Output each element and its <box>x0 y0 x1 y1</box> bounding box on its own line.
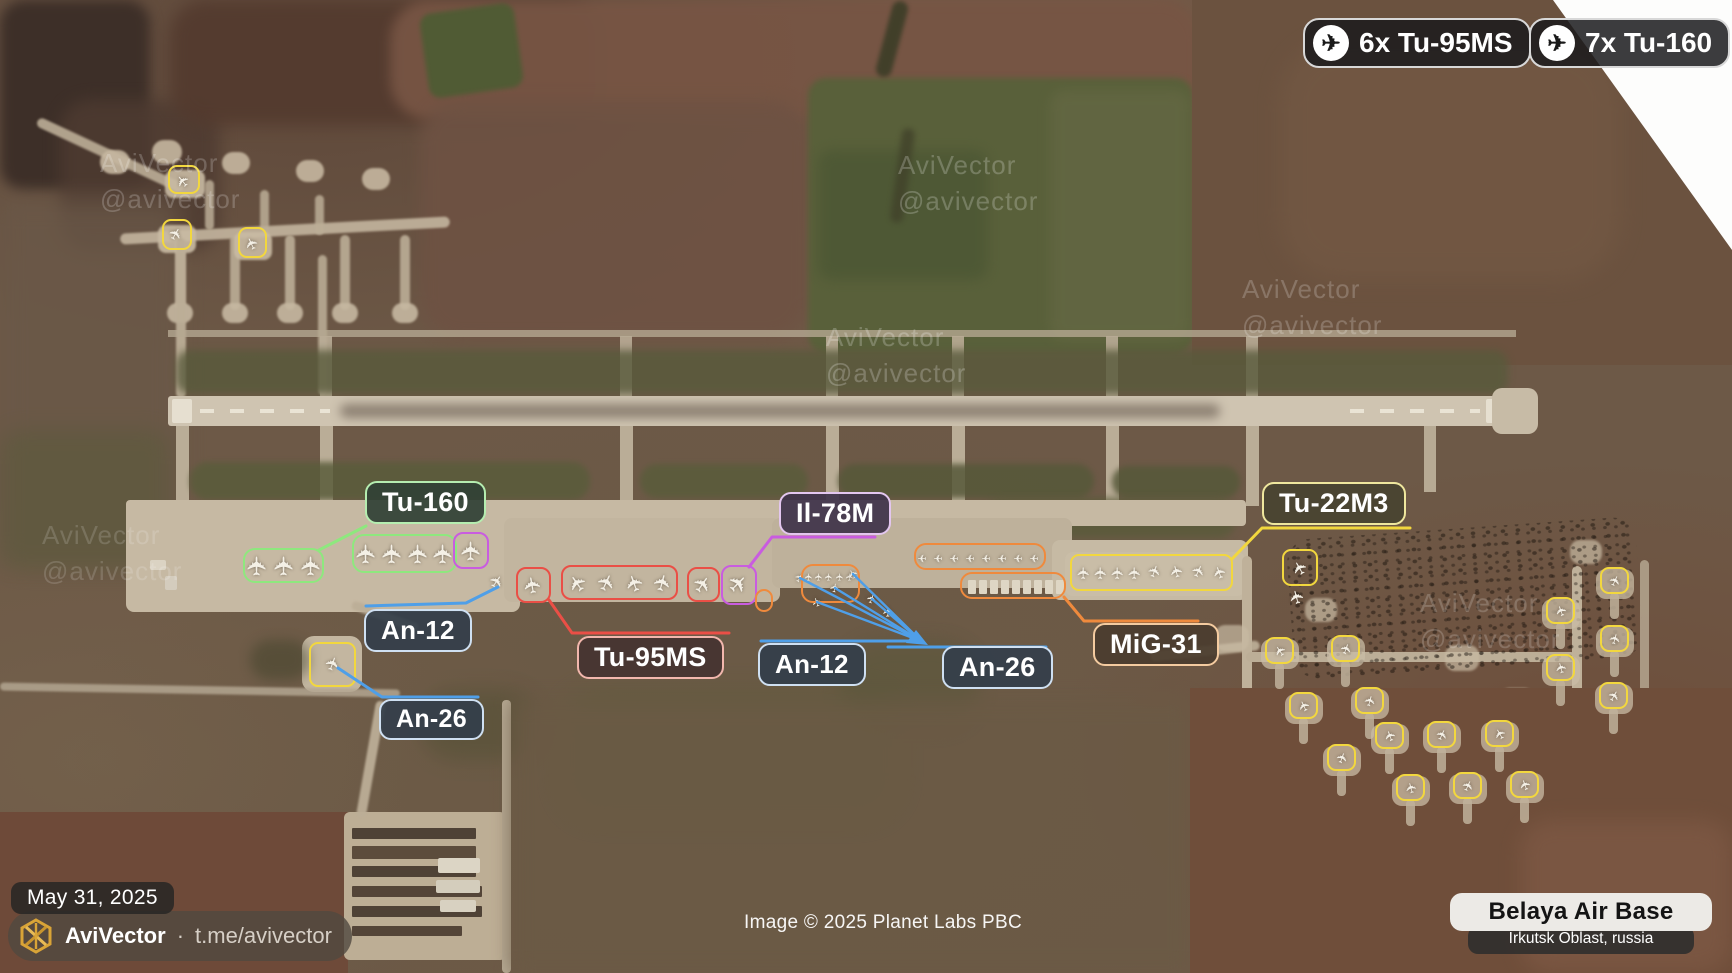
annotation-box-yellow <box>1453 772 1482 799</box>
label-an12-left: An-12 <box>364 609 472 652</box>
brand-name: AviVector <box>65 923 166 949</box>
dispersal-stub <box>1610 651 1619 677</box>
terrain-patch <box>152 140 182 164</box>
annotation-box-yellow <box>1396 774 1425 801</box>
terrain-patch <box>436 880 480 893</box>
terrain-patch <box>440 900 476 912</box>
annotation-box-orange <box>755 589 773 612</box>
label-mig31: MiG-31 <box>1093 623 1219 666</box>
terrain-patch <box>352 828 476 839</box>
dispersal-stub <box>1520 797 1529 823</box>
annotation-box-purple <box>721 565 757 605</box>
brand-pill: AviVector · t.me/avivector <box>8 911 352 961</box>
annotation-box-yellow <box>1600 625 1629 652</box>
dispersal-stub <box>1463 798 1472 824</box>
annotation-box-yellow <box>1355 687 1384 714</box>
terrain-patch <box>285 235 295 310</box>
terrain-patch <box>502 700 511 973</box>
brand-separator: · <box>177 923 184 949</box>
dispersal-stub <box>1609 708 1618 734</box>
annotation-box-yellow <box>238 227 267 258</box>
annotation-box-orange <box>914 543 1046 570</box>
label-an12-mid: An-12 <box>758 643 866 686</box>
label-tu160: Tu-160 <box>365 481 486 524</box>
dispersal-stub <box>1437 747 1446 773</box>
annotation-box-yellow <box>1289 692 1318 719</box>
dispersal-stub <box>1385 748 1394 774</box>
annotation-box-yellow <box>1327 744 1356 771</box>
terrain-patch <box>1424 426 1436 492</box>
annotation-box-yellow <box>1546 597 1575 624</box>
terrain-patch <box>315 195 324 235</box>
terrain-patch <box>419 2 525 99</box>
dispersal-stub <box>1556 680 1565 706</box>
annotation-box-yellow <box>1282 549 1318 586</box>
dispersal-stub <box>1610 593 1619 619</box>
terrain-patch <box>362 168 390 190</box>
date-badge: May 31, 2025 <box>11 882 174 914</box>
leader-line-mig31 <box>1064 597 1198 621</box>
dispersal-stub <box>1275 663 1284 689</box>
terrain-patch <box>1050 90 1190 340</box>
terrain-patch <box>176 426 189 506</box>
terrain-patch <box>176 350 1508 394</box>
terrain-patch <box>332 303 358 323</box>
terrain-patch <box>165 576 177 590</box>
runway-centerline <box>200 409 330 413</box>
label-an26-mid: An-26 <box>942 646 1053 689</box>
terrain-patch <box>1246 426 1259 506</box>
label-tu95ms: Tu-95MS <box>577 636 724 679</box>
terrain-patch <box>1215 625 1249 651</box>
annotation-box-orange <box>960 572 1066 599</box>
count-badge-text: 7x Tu-160 <box>1585 27 1712 59</box>
annotation-box-orange <box>801 564 860 603</box>
terrain-patch <box>222 303 248 323</box>
annotation-box-yellow <box>1427 721 1456 748</box>
base-name: Belaya Air Base <box>1450 893 1712 931</box>
terrain-patch <box>222 152 250 174</box>
annotation-box-yellow <box>309 642 356 687</box>
annotation-box-yellow <box>168 165 200 194</box>
annotation-box-yellow <box>1265 637 1294 664</box>
label-tu22m3: Tu-22M3 <box>1262 482 1406 525</box>
annotation-box-yellow <box>1600 567 1629 594</box>
count-badge-tu160: ✈ 7x Tu-160 <box>1529 18 1730 68</box>
terrain-patch <box>277 303 303 323</box>
terrain-patch <box>1492 388 1538 434</box>
terrain-patch <box>1112 466 1240 498</box>
terrain-patch <box>340 235 350 310</box>
label-il78m: Il-78M <box>779 492 891 535</box>
annotation-box-yellow <box>1375 722 1404 749</box>
terrain-patch <box>400 235 410 310</box>
annotation-box-red <box>687 567 720 602</box>
aircraft-icon: ✈ <box>882 607 895 618</box>
annotation-box-purple <box>453 532 489 569</box>
annotation-box-yellow <box>1485 720 1514 747</box>
airplane-icon: ✈ <box>1313 25 1349 61</box>
terrain-patch <box>172 399 192 423</box>
terrain-patch <box>340 404 1220 418</box>
label-an26-left: An-26 <box>379 699 484 740</box>
telegram-handle[interactable]: t.me/avivector <box>195 923 332 949</box>
annotation-box-red <box>516 567 551 603</box>
dispersal-stub <box>1299 718 1308 744</box>
airplane-icon: ✈ <box>1539 25 1575 61</box>
image-credit: Image © 2025 Planet Labs PBC <box>744 912 1022 934</box>
annotation-box-yellow <box>162 219 192 250</box>
terrain-patch <box>352 926 462 936</box>
annotation-box-yellow <box>1510 771 1539 798</box>
terrain-patch <box>1280 40 1620 280</box>
satellite-annotation-graphic: Tu-160 Il-78M Tu-22M3 An-12 Tu-95MS An-1… <box>0 0 1732 973</box>
runway-centerline <box>1350 409 1480 413</box>
terrain-patch <box>250 640 310 680</box>
terrain-patch <box>620 426 633 506</box>
terrain-patch <box>100 150 130 174</box>
annotation-box-green <box>352 534 457 573</box>
terrain-patch <box>168 330 1516 337</box>
terrain-patch <box>438 858 480 873</box>
count-badge-tu95ms: ✈ 6x Tu-95MS <box>1303 18 1531 68</box>
dispersal-stub <box>1341 661 1350 687</box>
dispersal-stub <box>1495 746 1504 772</box>
dispersal-stub <box>1556 623 1565 649</box>
annotation-box-red <box>561 565 678 600</box>
terrain-patch <box>640 464 808 498</box>
aircraft-icon: ✈ <box>865 592 880 606</box>
dispersal-stub <box>1406 800 1415 826</box>
annotation-box-yellow <box>1546 654 1575 681</box>
annotation-box-green <box>243 548 324 583</box>
dispersal-stub <box>1337 770 1346 796</box>
count-badge-text: 6x Tu-95MS <box>1359 27 1513 59</box>
terrain-patch <box>392 303 418 323</box>
annotation-box-yellow <box>1599 682 1628 709</box>
annotation-box-yellow <box>1331 635 1360 662</box>
terrain-patch <box>296 160 324 182</box>
terrain-patch <box>150 560 166 570</box>
terrain-patch <box>420 100 810 340</box>
terrain-patch <box>205 180 214 230</box>
avivector-logo-icon <box>18 918 54 954</box>
leader-line-tu95ms <box>549 600 729 633</box>
annotation-box-yellow <box>1070 554 1233 591</box>
